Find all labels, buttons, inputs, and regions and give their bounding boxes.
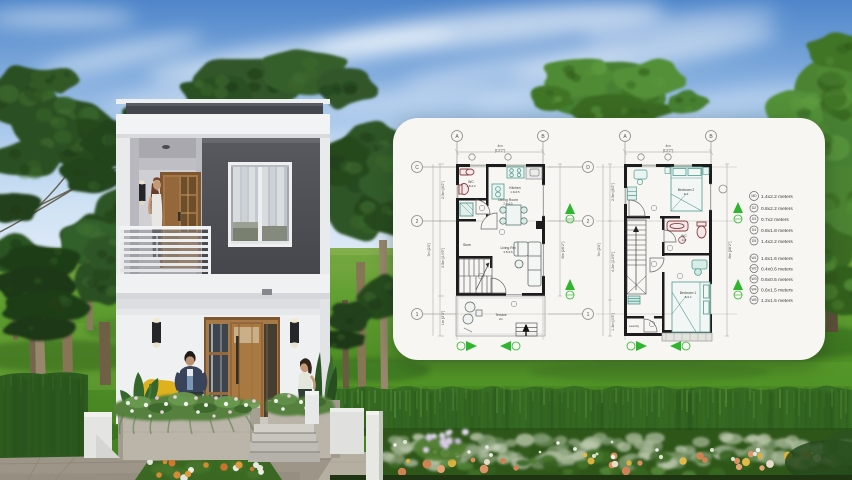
svg-text:0.4x0.6 meters: 0.4x0.6 meters — [761, 267, 793, 273]
svg-text:2: 2 — [416, 219, 419, 225]
svg-text:4m: 4m — [665, 144, 670, 148]
svg-text:D: D — [586, 165, 590, 171]
svg-text:1.2x1.5 meters: 1.2x1.5 meters — [761, 298, 793, 304]
svg-text:3.5x3.6: 3.5x3.6 — [503, 250, 513, 254]
svg-text:W5: W5 — [751, 298, 756, 302]
svg-text:1: 1 — [416, 312, 419, 318]
svg-text:1.9x2.5: 1.9x2.5 — [510, 190, 520, 194]
svg-text:[13'2"]: [13'2"] — [663, 149, 674, 153]
svg-text:1m [3'3"]: 1m [3'3"] — [441, 311, 445, 326]
svg-text:0.7x2 meters: 0.7x2 meters — [761, 217, 789, 223]
svg-text:8m [26'2"]: 8m [26'2"] — [561, 242, 565, 259]
svg-text:0.6x0.5 meters: 0.6x0.5 meters — [761, 277, 793, 283]
svg-text:2.5m [8'2"]: 2.5m [8'2"] — [611, 183, 615, 201]
svg-text:4.2m [13'9"]: 4.2m [13'9"] — [611, 252, 615, 272]
svg-text:7m [23']: 7m [23'] — [597, 243, 601, 256]
svg-text:[13'2"]: [13'2"] — [495, 149, 506, 153]
svg-text:8m [26'2"]: 8m [26'2"] — [728, 242, 732, 259]
svg-text:1.4x2.2 meters: 1.4x2.2 meters — [761, 239, 793, 245]
svg-text:W1: W1 — [751, 256, 756, 260]
svg-text:3x3: 3x3 — [684, 192, 689, 196]
svg-text:4m: 4m — [497, 144, 502, 148]
svg-text:MD: MD — [751, 194, 757, 198]
svg-text:1: 1 — [587, 312, 590, 318]
svg-text:D4: D4 — [752, 228, 756, 232]
svg-text:2x2: 2x2 — [682, 238, 687, 242]
svg-text:W2: W2 — [751, 267, 756, 271]
svg-text:2.5m [8'2"]: 2.5m [8'2"] — [441, 181, 445, 199]
svg-text:7m [23']: 7m [23'] — [427, 243, 431, 256]
svg-text:W3: W3 — [751, 277, 756, 281]
svg-text:Laundry: Laundry — [629, 324, 640, 328]
svg-text:2: 2 — [587, 219, 590, 225]
svg-text:4.5m [14'9"]: 4.5m [14'9"] — [441, 248, 445, 268]
svg-text:Store: Store — [463, 243, 471, 247]
svg-text:W4: W4 — [751, 288, 756, 292]
svg-text:1.4x2.2 meters: 1.4x2.2 meters — [761, 194, 793, 200]
svg-text:2.6x2.5: 2.6x2.5 — [503, 202, 513, 206]
svg-text:0.8x2.2 meters: 0.8x2.2 meters — [761, 206, 793, 212]
svg-text:3x4.2: 3x4.2 — [685, 295, 692, 299]
svg-text:1.5x1.9: 1.5x1.9 — [466, 184, 476, 188]
svg-text:1.3m [4'3"]: 1.3m [4'3"] — [611, 313, 615, 331]
svg-text:0.8x1.8 meters: 0.8x1.8 meters — [761, 228, 793, 234]
svg-text:D2: D2 — [752, 206, 756, 210]
svg-text:0.6x1.5 meters: 0.6x1.5 meters — [761, 288, 793, 294]
svg-text:1.6x1.6 meters: 1.6x1.6 meters — [761, 256, 793, 262]
svg-text:2m: 2m — [499, 317, 504, 321]
svg-text:C: C — [415, 165, 419, 171]
svg-text:D5: D5 — [752, 239, 756, 243]
svg-text:D3: D3 — [752, 217, 756, 221]
